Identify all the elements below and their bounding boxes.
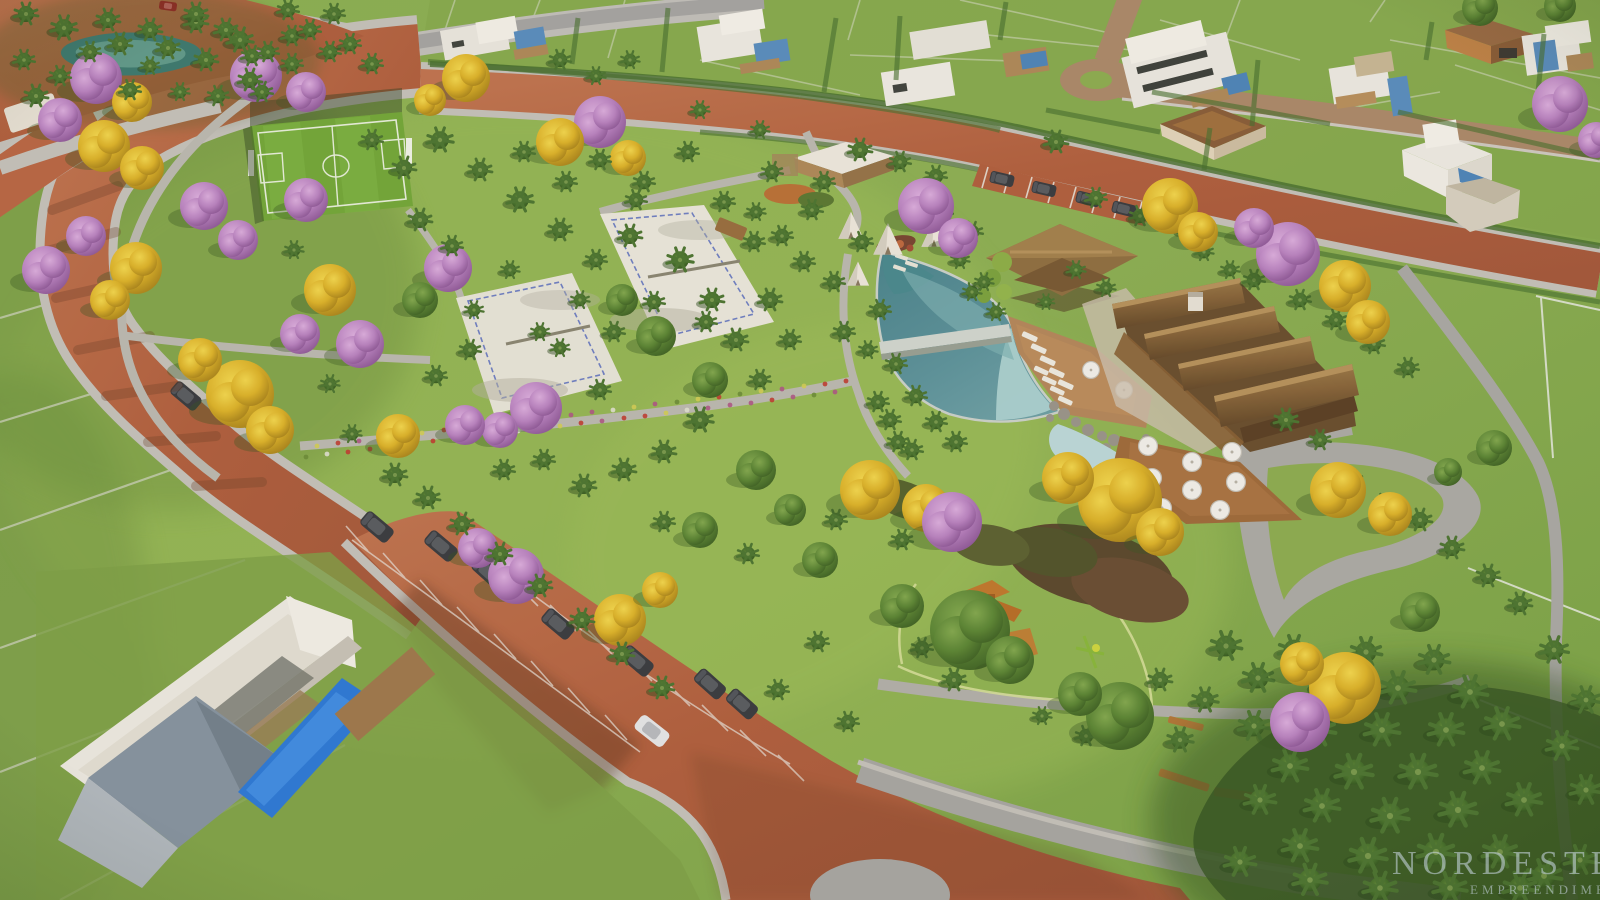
svg-text:NORDESTE: NORDESTE	[1392, 845, 1600, 882]
svg-text:EMPREENDIMENTO: EMPREENDIMENTO	[1470, 882, 1600, 897]
